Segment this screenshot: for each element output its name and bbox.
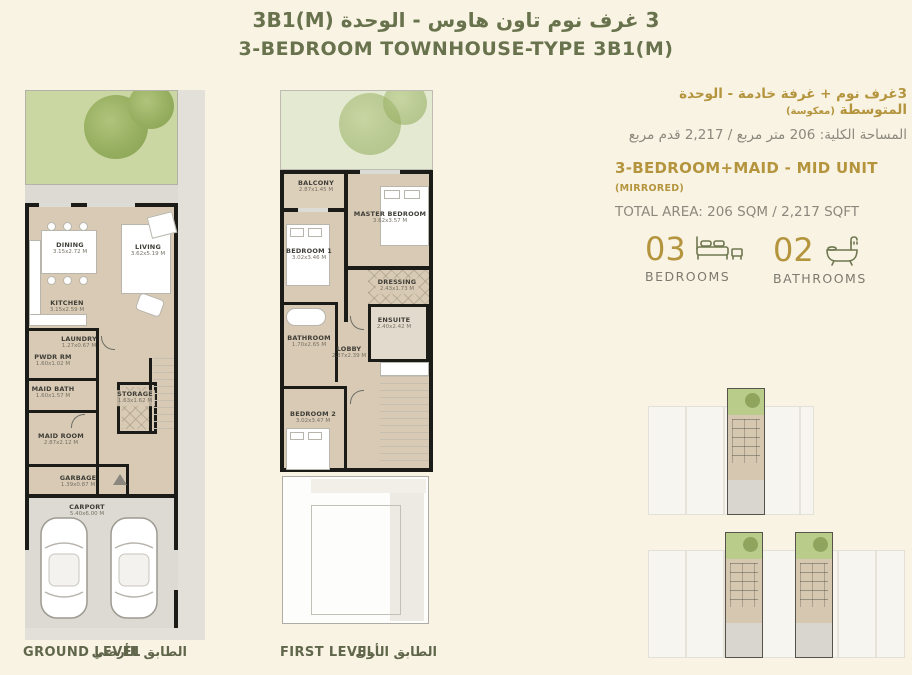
chair (63, 276, 72, 285)
pillow (404, 190, 420, 199)
room-label-carport: CARPORT5.40x6.00 M (69, 503, 105, 519)
kitchen-counter (29, 314, 87, 326)
entrance-arrow-icon (113, 474, 127, 485)
first-level-label-ar: الطابق الأول (355, 645, 437, 660)
wall (174, 498, 178, 550)
room-label-bathroom: BATHROOM1.70x2.65 M (287, 334, 330, 350)
room-label-maid-room: MAID ROOM2.87x2.12 M (38, 432, 84, 448)
room-label-bedroom-2: BEDROOM 23.02x3.47 M (290, 410, 336, 426)
garden (25, 90, 178, 185)
bed-icon (694, 234, 744, 264)
room-label-lobby: LOBBY2.37x2.39 M (332, 345, 366, 361)
tree-icon (128, 90, 174, 129)
bathrooms-stat: 02 BATHROOMS (773, 233, 867, 286)
ensuite-room (368, 304, 429, 362)
sidewalk-strip (178, 90, 205, 640)
wall (284, 302, 338, 305)
key-plan-lower (648, 532, 905, 658)
room-label-living: LIVING3.62x5.19 M (131, 243, 165, 259)
car-icon (37, 514, 91, 622)
bedrooms-label: BEDROOMS (645, 269, 744, 284)
chair (79, 276, 88, 285)
bedrooms-count: 03 (645, 233, 686, 265)
sidewalk-strip (25, 628, 178, 640)
wall (29, 378, 99, 381)
unit-area-arabic: المساحة الكلية: 206 متر مربع / 2,217 قدم… (615, 127, 907, 143)
unit-area-english: TOTAL AREA: 206 SQM / 2,217 SQFT (615, 204, 907, 220)
chair (63, 222, 72, 231)
window (298, 208, 328, 212)
room-label-dining: DINING3.15x2.72 M (53, 241, 87, 257)
wall (25, 498, 29, 550)
window (87, 203, 135, 207)
room-label-pwdr-rm: PWDR RM1.60x1.02 M (34, 353, 71, 369)
key-plan-upper (648, 388, 814, 515)
car-icon (107, 514, 161, 622)
room-label-master-bedroom: MASTER BEDROOM3.62x3.57 M (354, 210, 426, 226)
chair (79, 222, 88, 231)
first-level-plan: BALCONY2.87x1.45 M MASTER BEDROOM3.62x3.… (280, 90, 433, 640)
page-title-english: 3-BEDROOM TOWNHOUSE-TYPE 3B1(M) (0, 38, 912, 60)
window (39, 203, 71, 207)
room-label-dressing: DRESSING2.43x1.73 M (376, 278, 419, 294)
key-plan-highlighted-unit (727, 388, 765, 515)
stair-landing (380, 362, 429, 376)
room-label-ensuite: ENSUITE2.40x2.42 M (377, 316, 411, 332)
unit-type-arabic: 3غرف نوم + غرفة خادمة - الوحدة المتوسطة … (615, 86, 907, 118)
pillow (290, 432, 304, 440)
bathrooms-label: BATHROOMS (773, 271, 867, 286)
window (360, 170, 400, 174)
stairs-icon (380, 376, 429, 464)
tree-icon (745, 393, 760, 408)
room-label-laundry: LAUNDRY1.27x0.67 M (61, 335, 97, 351)
ground-level-plan: DINING3.15x2.72 M LIVING3.62x5.19 M KITC… (25, 90, 205, 640)
chair (47, 222, 56, 231)
wall (344, 174, 348, 322)
void-area (282, 476, 429, 624)
key-plan-highlighted-unit (725, 532, 763, 658)
wall (174, 590, 178, 628)
room-label-garbage: GARBAGE1.39x0.87 M (60, 474, 97, 490)
room-label-kitchen: KITCHEN3.15x2.59 M (50, 299, 84, 315)
floorplan-brochure-page: 3 غرف نوم تاون هاوس - الوحدة 3B1(M) 3-BE… (0, 0, 912, 675)
bathtub (286, 308, 326, 326)
room-label-balcony: BALCONY2.87x1.45 M (298, 179, 334, 195)
wall (29, 464, 129, 467)
pillow (308, 432, 322, 440)
wall (335, 302, 338, 382)
bathrooms-count: 02 (773, 234, 814, 266)
ground-level-label-ar: الطابق الأرضي (92, 645, 187, 660)
page-title-arabic: 3 غرف نوم تاون هاوس - الوحدة 3B1(M) (0, 8, 912, 32)
garden-below (280, 90, 433, 170)
patio-strip (25, 185, 178, 203)
wall (29, 328, 99, 331)
stairs-icon (153, 358, 174, 432)
unit-info: 3غرف نوم + غرفة خادمة - الوحدة المتوسطة … (615, 86, 907, 220)
key-plan-highlighted-unit (795, 532, 833, 658)
wall (344, 386, 347, 472)
tree-icon (813, 537, 828, 552)
bedrooms-stat: 03 BEDROOMS (645, 233, 744, 284)
chair (47, 276, 56, 285)
wall (284, 386, 346, 389)
wall (29, 410, 99, 413)
room-label-maid-bath: MAID BATH1.60x1.57 M (32, 385, 75, 401)
pillow (290, 228, 304, 237)
pillow (384, 190, 400, 199)
room-label-bedroom-1: BEDROOM 13.02x3.46 M (286, 247, 332, 263)
room-label-storage: STORAGE1.63x1.62 M (115, 390, 155, 406)
unit-type-english: 3-BEDROOM+MAID - MID UNIT (MIRRORED) (615, 159, 907, 195)
tree-icon (743, 537, 758, 552)
bathtub-icon (822, 233, 862, 267)
pillow (308, 228, 322, 237)
